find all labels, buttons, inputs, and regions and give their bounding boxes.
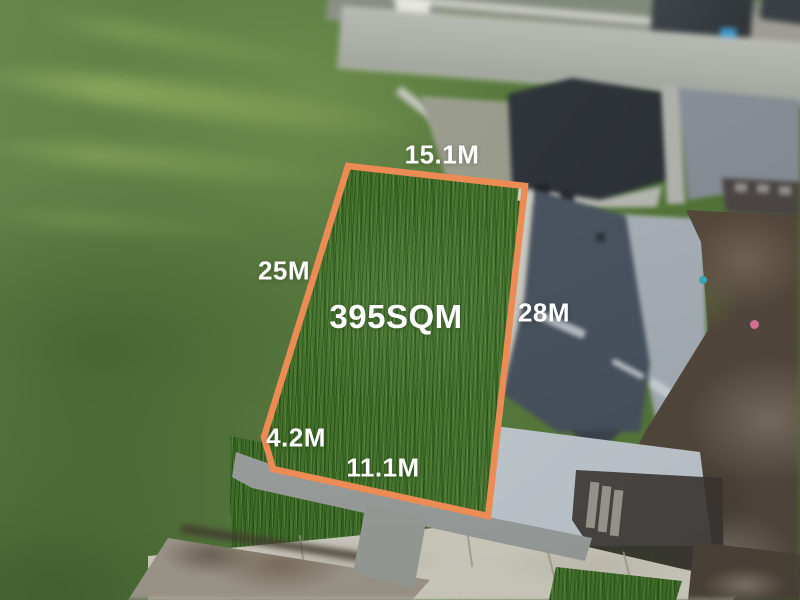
dimension-label-bottom-left: 4.2M [266, 423, 326, 454]
roof-vent [596, 233, 605, 242]
yard-object-teal [699, 276, 707, 284]
aerial-photo: 15.1M 25M 395SQM 28M 4.2M 11.1M [0, 0, 800, 600]
yard-object-pink [750, 320, 759, 329]
dimension-label-right: 28M [518, 298, 570, 329]
dimension-label-left: 25M [258, 256, 310, 287]
dimension-label-top: 15.1M [405, 140, 480, 171]
survey-peg [517, 188, 526, 202]
dimension-label-bottom: 11.1M [346, 453, 419, 484]
lot-area-label: 395SQM [329, 298, 462, 336]
